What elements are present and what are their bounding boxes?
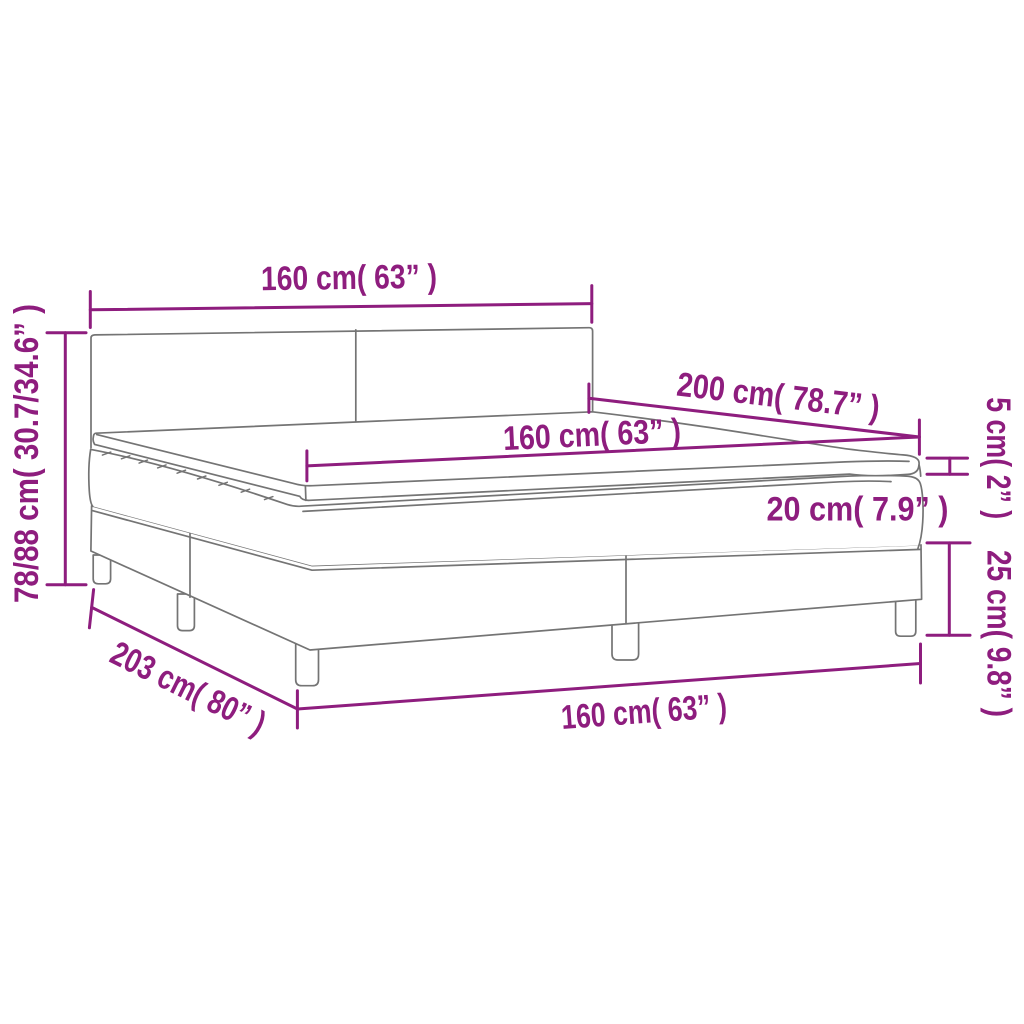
svg-text:20 cm( 7.9” ): 20 cm( 7.9” ) bbox=[767, 491, 949, 529]
svg-text:160 cm( 63” ): 160 cm( 63” ) bbox=[261, 258, 438, 298]
svg-text:25 cm( 9.8” ): 25 cm( 9.8” ) bbox=[980, 550, 1018, 717]
svg-text:78/88 cm( 30.7/34.6” ): 78/88 cm( 30.7/34.6” ) bbox=[8, 304, 46, 603]
svg-text:5 cm( 2” ): 5 cm( 2” ) bbox=[979, 397, 1017, 519]
